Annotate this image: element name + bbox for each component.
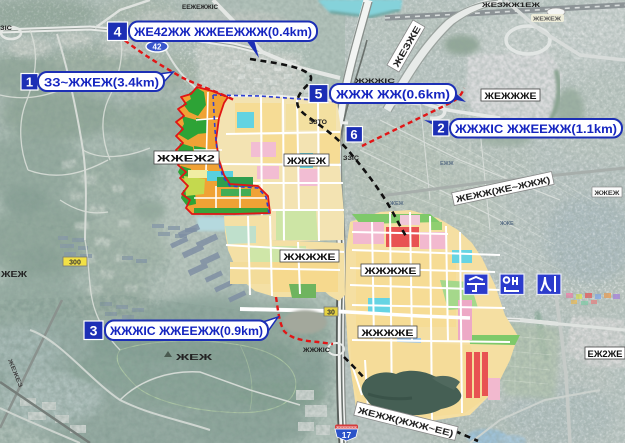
svg-text:ЖЖЖЖЕ: ЖЖЖЖЕ [360, 328, 413, 338]
svg-text:2: 2 [437, 121, 444, 136]
svg-text:3: 3 [90, 323, 98, 339]
svg-text:ЖЖЖIC ЖЖЕЕЖЖ(0.9km): ЖЖЖIC ЖЖЕЕЖЖ(0.9km) [109, 326, 263, 338]
svg-text:ЖЕЗЖЖ1ЕЖ: ЖЕЗЖЖ1ЕЖ [480, 3, 540, 9]
svg-text:ЖЖЕЖ2: ЖЖЕЖ2 [155, 154, 215, 164]
svg-text:5: 5 [315, 86, 323, 102]
svg-text:ЖЕЖЕЖ: ЖЕЖЕЖ [532, 17, 561, 23]
svg-text:1: 1 [26, 75, 33, 90]
svg-text:6: 6 [350, 127, 357, 142]
svg-text:ЕЕЖЕЖЖIC: ЕЕЖЕЖЖIC [182, 5, 219, 11]
svg-text:ЖЖЖIC ЖЖЕЕЖЖ(1.1km): ЖЖЖIC ЖЖЕЕЖЖ(1.1km) [454, 124, 617, 136]
svg-text:ЕЖЖ: ЕЖЖ [440, 161, 454, 167]
svg-text:30: 30 [327, 310, 335, 317]
svg-text:ЖЖЖ ЖЖ(0.6km): ЖЖЖ ЖЖ(0.6km) [335, 90, 450, 102]
svg-text:ЖЖЖIC: ЖЖЖIC [302, 348, 331, 354]
svg-text:4: 4 [114, 24, 122, 40]
svg-text:ЖЖЕ: ЖЖЕ [499, 221, 514, 227]
svg-text:ЖЕЖ: ЖЕЖ [0, 270, 28, 279]
svg-text:ЖЖЖЖЕ: ЖЖЖЖЕ [363, 266, 416, 276]
svg-text:ЖЖЖЖЕ: ЖЖЖЖЕ [282, 252, 335, 262]
svg-text:ЖЕ42ЖЖ ЖЖЕЕЖЖЖ(0.4km): ЖЕ42ЖЖ ЖЖЕЕЖЖЖ(0.4km) [133, 27, 312, 39]
svg-text:ЕЖ2ЖЕ: ЕЖ2ЖЕ [588, 349, 623, 359]
svg-text:ЖЖЕЖ: ЖЖЕЖ [593, 190, 619, 197]
svg-text:ЖЕЖ: ЖЕЖ [389, 201, 404, 207]
svg-text:42: 42 [153, 43, 162, 52]
svg-text:ЖЕЖ: ЖЕЖ [174, 352, 212, 362]
svg-text:300: 300 [69, 260, 81, 267]
svg-text:ЗЗ~ЖЖЕЖ(3.4km): ЗЗ~ЖЖЕЖ(3.4km) [44, 78, 159, 90]
svg-text:ЗЗIC: ЗЗIC [343, 156, 360, 162]
svg-text:17: 17 [342, 430, 352, 440]
svg-text:ЖЖЕЖ: ЖЖЕЖ [286, 156, 327, 166]
svg-text:ЗЗTO: ЗЗTO [309, 120, 327, 126]
svg-text:ЖЕЖЖЖЕ: ЖЕЖЖЖЕ [483, 91, 536, 101]
svg-text:ЗIC: ЗIC [0, 26, 13, 32]
